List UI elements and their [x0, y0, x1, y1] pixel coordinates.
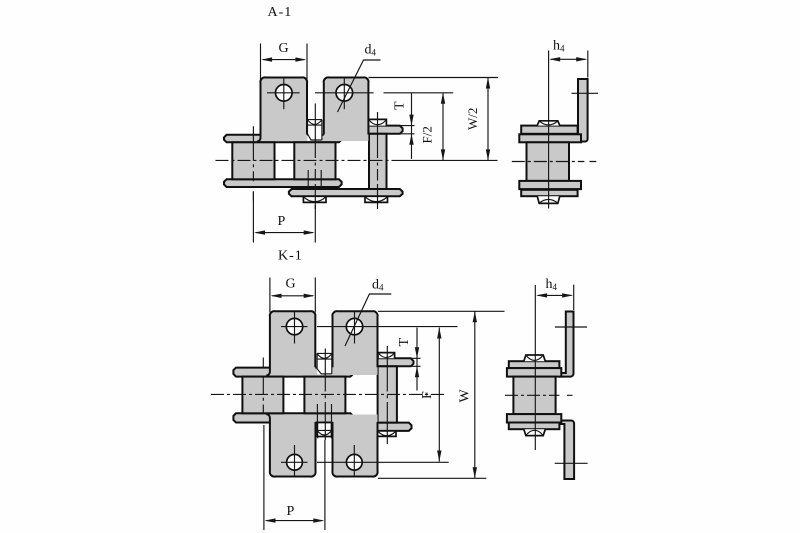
svg-text:d4: d4 [365, 43, 377, 58]
svg-text:P: P [278, 214, 286, 229]
svg-text:G: G [286, 277, 296, 292]
svg-text:F/2: F/2 [420, 126, 435, 143]
svg-text:d4: d4 [372, 278, 384, 293]
svg-text:P: P [287, 504, 295, 519]
svg-text:T: T [393, 101, 408, 110]
svg-text:A-1: A-1 [268, 5, 293, 20]
svg-text:W/2: W/2 [465, 108, 480, 130]
svg-text:K-1: K-1 [278, 249, 303, 264]
svg-text:T: T [397, 338, 412, 347]
svg-text:G: G [279, 41, 289, 56]
svg-text:h4: h4 [553, 39, 565, 54]
svg-text:h4: h4 [546, 277, 558, 292]
svg-text:F: F [420, 391, 435, 399]
svg-text:W: W [458, 389, 473, 403]
